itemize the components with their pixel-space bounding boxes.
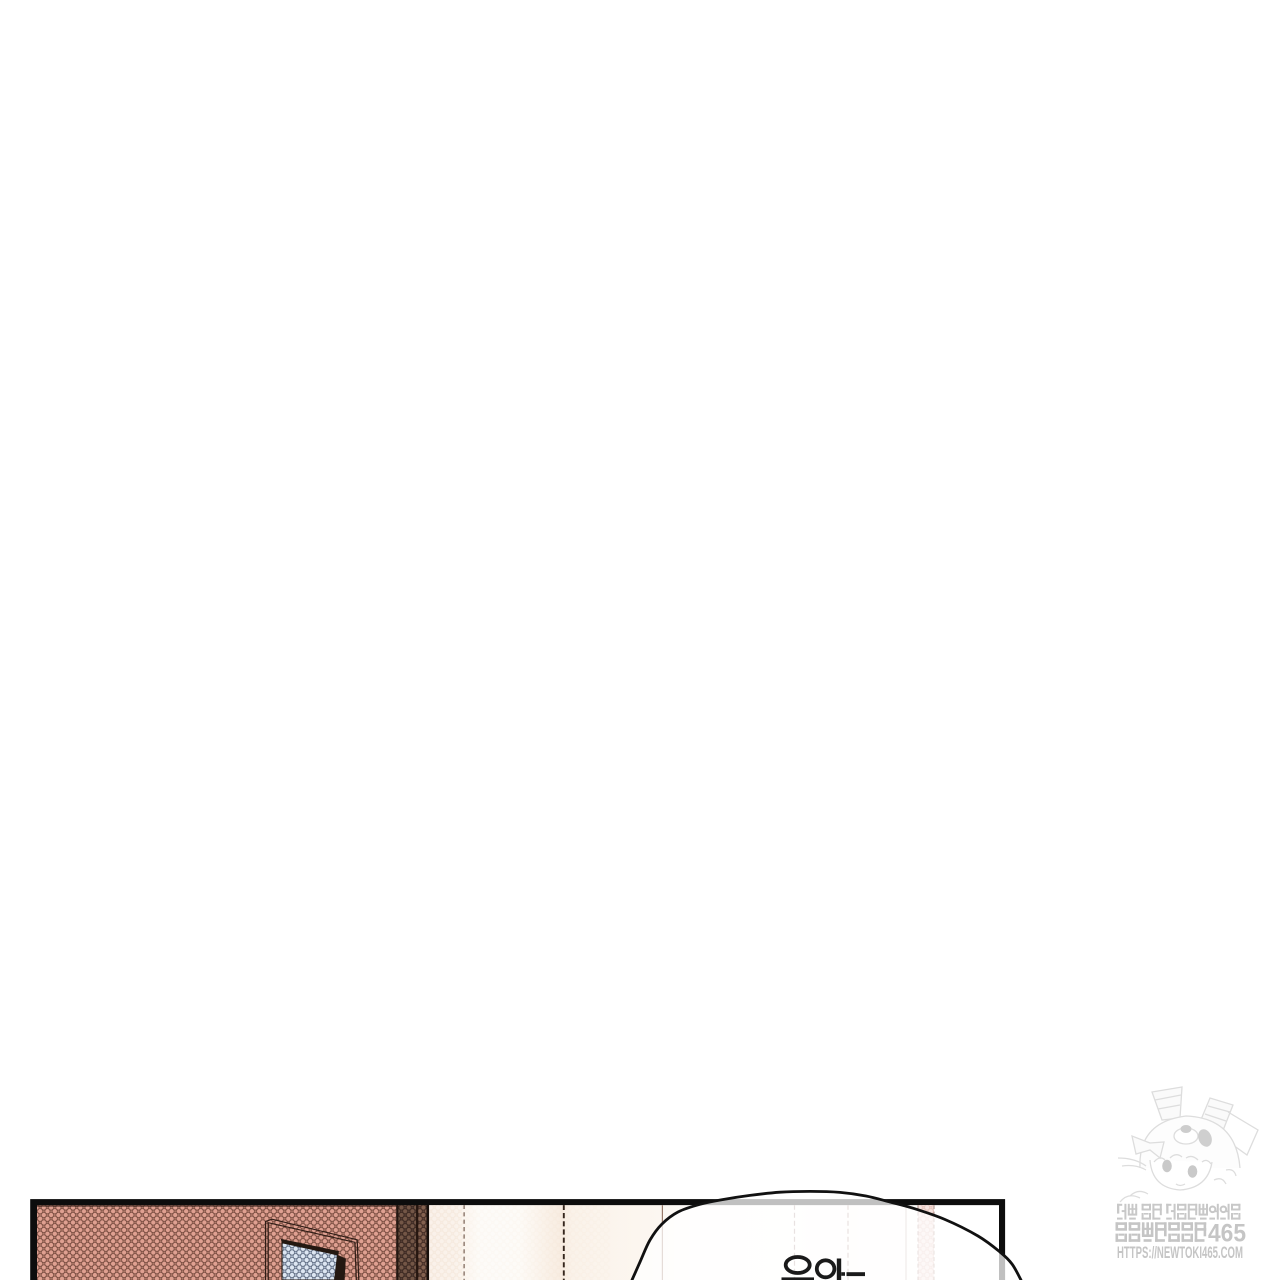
svg-text:HTTPS://NEWTOKI465.COM: HTTPS://NEWTOKI465.COM	[1117, 1243, 1243, 1262]
